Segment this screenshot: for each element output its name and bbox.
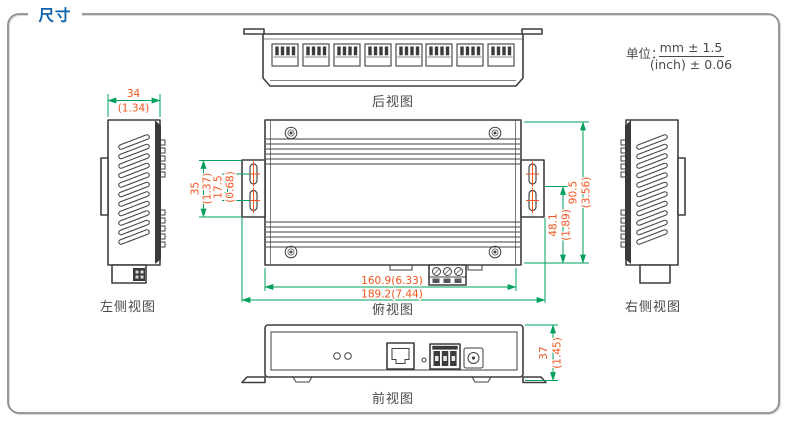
dim-depth-in: (3.56)	[581, 177, 593, 209]
front-right-ear	[523, 377, 546, 383]
right-wall-bracket	[678, 158, 685, 215]
units-metric: mm ± 1.5	[660, 40, 723, 55]
dimension-drawing: 尺寸 单位： mm ± 1.5 (inch) ± 0.06 后视图	[0, 0, 786, 423]
top-body	[265, 120, 521, 265]
front-height-dimension: 37 (1.45)	[525, 325, 564, 381]
left-edge-band	[155, 120, 161, 264]
left-serration-top	[161, 140, 166, 177]
right-side-view: 右侧视图	[621, 120, 685, 315]
rear-view-label: 后视图	[372, 95, 414, 110]
front-rj45-port	[387, 343, 414, 369]
dim-rail-in: (1.89)	[561, 209, 573, 241]
right-serration-bottom	[621, 210, 626, 247]
dim-height-mm: 37	[538, 346, 550, 359]
dim-depth-mm: 90.5	[568, 181, 580, 204]
left-width-mm: 34	[127, 88, 141, 100]
top-view-label: 俯视图	[372, 302, 414, 318]
rear-view: 后视图	[244, 29, 542, 110]
dim-height-in: (1.45)	[552, 337, 564, 369]
right-bottom-connector	[640, 265, 670, 283]
dim-overall-width: 189.2(7.44)	[361, 289, 423, 301]
right-edge-band	[625, 120, 631, 264]
front-view: 37 (1.45) 前视图	[242, 325, 564, 407]
left-serration-bottom	[161, 210, 166, 247]
front-terminal-block	[430, 344, 460, 369]
left-width-dimension: 34 (1.34)	[108, 88, 160, 117]
rear-left-ear	[244, 29, 264, 34]
units-imperial: (inch) ± 0.06	[650, 57, 732, 72]
dimension-drawing-page: 尺寸 单位： mm ± 1.5 (inch) ± 0.06 后视图	[0, 0, 786, 423]
dim-rail-mm: 48.1	[548, 213, 560, 236]
front-view-label: 前视图	[372, 391, 414, 407]
left-wall-bracket	[101, 158, 108, 215]
rear-right-ear	[522, 29, 542, 34]
units-note: 单位： mm ± 1.5 (inch) ± 0.06	[626, 40, 732, 72]
right-view-label: 右侧视图	[625, 300, 681, 315]
dim-bracket-mm: 35	[190, 182, 202, 195]
top-view: 35 (1.37) 17.5 (0.68) 160.9(6.33) 189.2(…	[190, 120, 593, 318]
left-width-in: (1.34)	[118, 103, 150, 115]
top-left-dimensions: 35 (1.37) 17.5 (0.68)	[190, 161, 251, 218]
page-title: 尺寸	[38, 6, 71, 25]
dim-holes-mm: 17.5	[213, 175, 225, 198]
dim-holes-in: (0.68)	[225, 171, 237, 203]
right-serration-top	[621, 140, 626, 177]
left-side-view: 34 (1.34) 左侧视图	[100, 88, 165, 315]
left-view-label: 左侧视图	[100, 300, 156, 315]
dim-body-width: 160.9(6.33)	[361, 275, 423, 287]
top-terminal-block	[429, 265, 466, 285]
rear-body	[263, 34, 523, 86]
front-left-ear	[242, 377, 265, 383]
